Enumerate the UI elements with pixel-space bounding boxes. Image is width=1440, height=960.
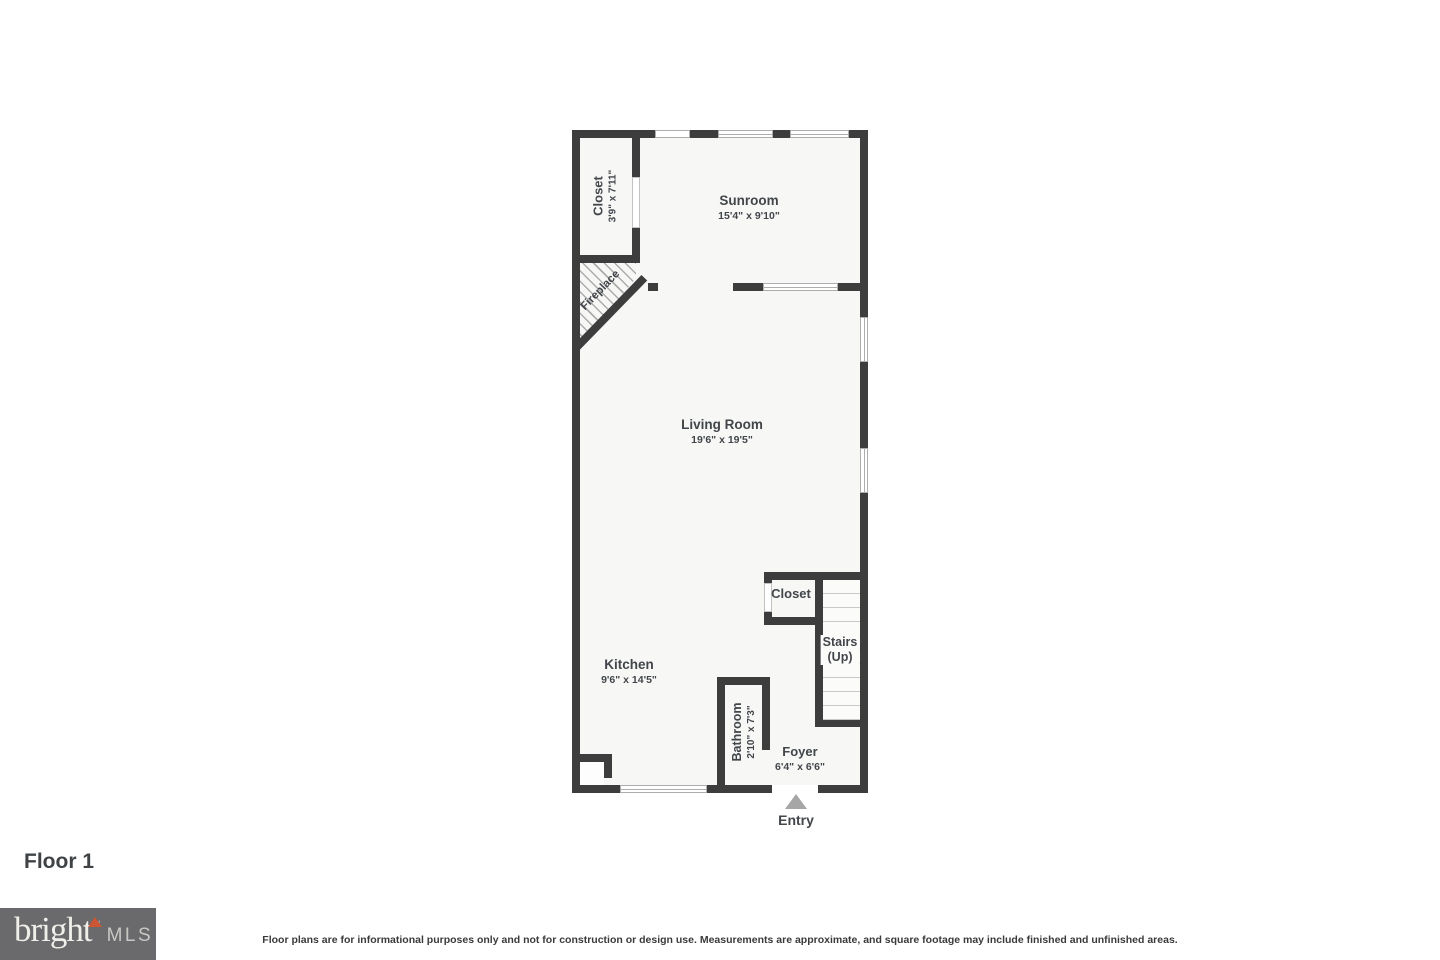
foyer-dims: 6'4" x 6'6" [775, 761, 825, 773]
wall-outer-left [572, 130, 580, 793]
logo-arrow-icon [88, 917, 102, 927]
wall-bathroom-right [762, 685, 770, 750]
door-closet-tl [632, 177, 640, 228]
living-room-name: Living Room [681, 417, 763, 433]
wall-alcove-top [572, 754, 612, 762]
wall-closet-mid-left-upper [764, 572, 772, 583]
floor-plan: Closet 3'9" x 7'11" Sunroom 15'4" x 9'10… [572, 130, 868, 793]
sunroom-name: Sunroom [718, 193, 780, 209]
wall-stairs-bottom [815, 720, 868, 727]
opening-entry-door [772, 785, 818, 793]
kitchen-alcove [580, 762, 604, 785]
wall-bathroom-top [717, 677, 770, 685]
brand-logo: bright ™ MLS [0, 908, 156, 960]
closet-tl-name: Closet [591, 170, 607, 223]
stairs-name: Stairs [823, 635, 858, 650]
room-label-foyer: Foyer 6'4" x 6'6" [775, 745, 825, 773]
room-label-stairs: Stairs (Up) [821, 635, 860, 665]
room-label-living-room: Living Room 19'6" x 19'5" [681, 417, 763, 446]
wall-outer-bottom [572, 785, 868, 793]
sunroom-dims: 15'4" x 9'10" [718, 210, 780, 222]
window-sunroom-top-2 [718, 130, 773, 138]
stairs-direction: (Up) [823, 650, 858, 665]
window-sunroom-top-3 [790, 130, 849, 138]
window-living-right-1 [860, 317, 868, 362]
logo-text-line: bright ™ MLS [14, 910, 153, 950]
floor-title: Floor 1 [24, 850, 94, 874]
room-label-bathroom: Bathroom 2'10" x 7'3" [730, 702, 758, 761]
room-label-kitchen: Kitchen 9'6" x 14'5" [601, 657, 657, 686]
disclaimer-text: Floor plans are for informational purpos… [0, 934, 1440, 946]
kitchen-dims: 9'6" x 14'5" [601, 674, 657, 686]
room-label-closet-middle: Closet [771, 586, 811, 601]
bathroom-name: Bathroom [730, 702, 745, 761]
closet-tl-dims: 3'9" x 7'11" [607, 170, 619, 223]
room-label-closet-top-left: Closet 3'9" x 7'11" [591, 170, 620, 223]
room-label-sunroom: Sunroom 15'4" x 9'10" [718, 193, 780, 222]
wall-bathroom-left [717, 677, 725, 785]
kitchen-name: Kitchen [601, 657, 657, 673]
living-room-dims: 19'6" x 19'5" [681, 434, 763, 446]
logo-mls-text: MLS [107, 925, 154, 947]
wall-closet-tl-bottom [572, 255, 640, 263]
logo-wordmark: bright [14, 910, 92, 950]
window-living-right-2 [860, 448, 868, 493]
wall-alcove-right [604, 762, 612, 778]
window-sunroom-top-1 [655, 130, 690, 138]
bathroom-dims: 2'10" x 7'3" [746, 702, 758, 761]
window-kitchen-bottom [620, 785, 707, 793]
opening-sunroom [658, 283, 733, 291]
foyer-name: Foyer [775, 745, 825, 760]
entry-arrow-icon [785, 794, 807, 809]
entry-label: Entry [778, 812, 814, 828]
window-sunroom-interior [763, 283, 838, 291]
